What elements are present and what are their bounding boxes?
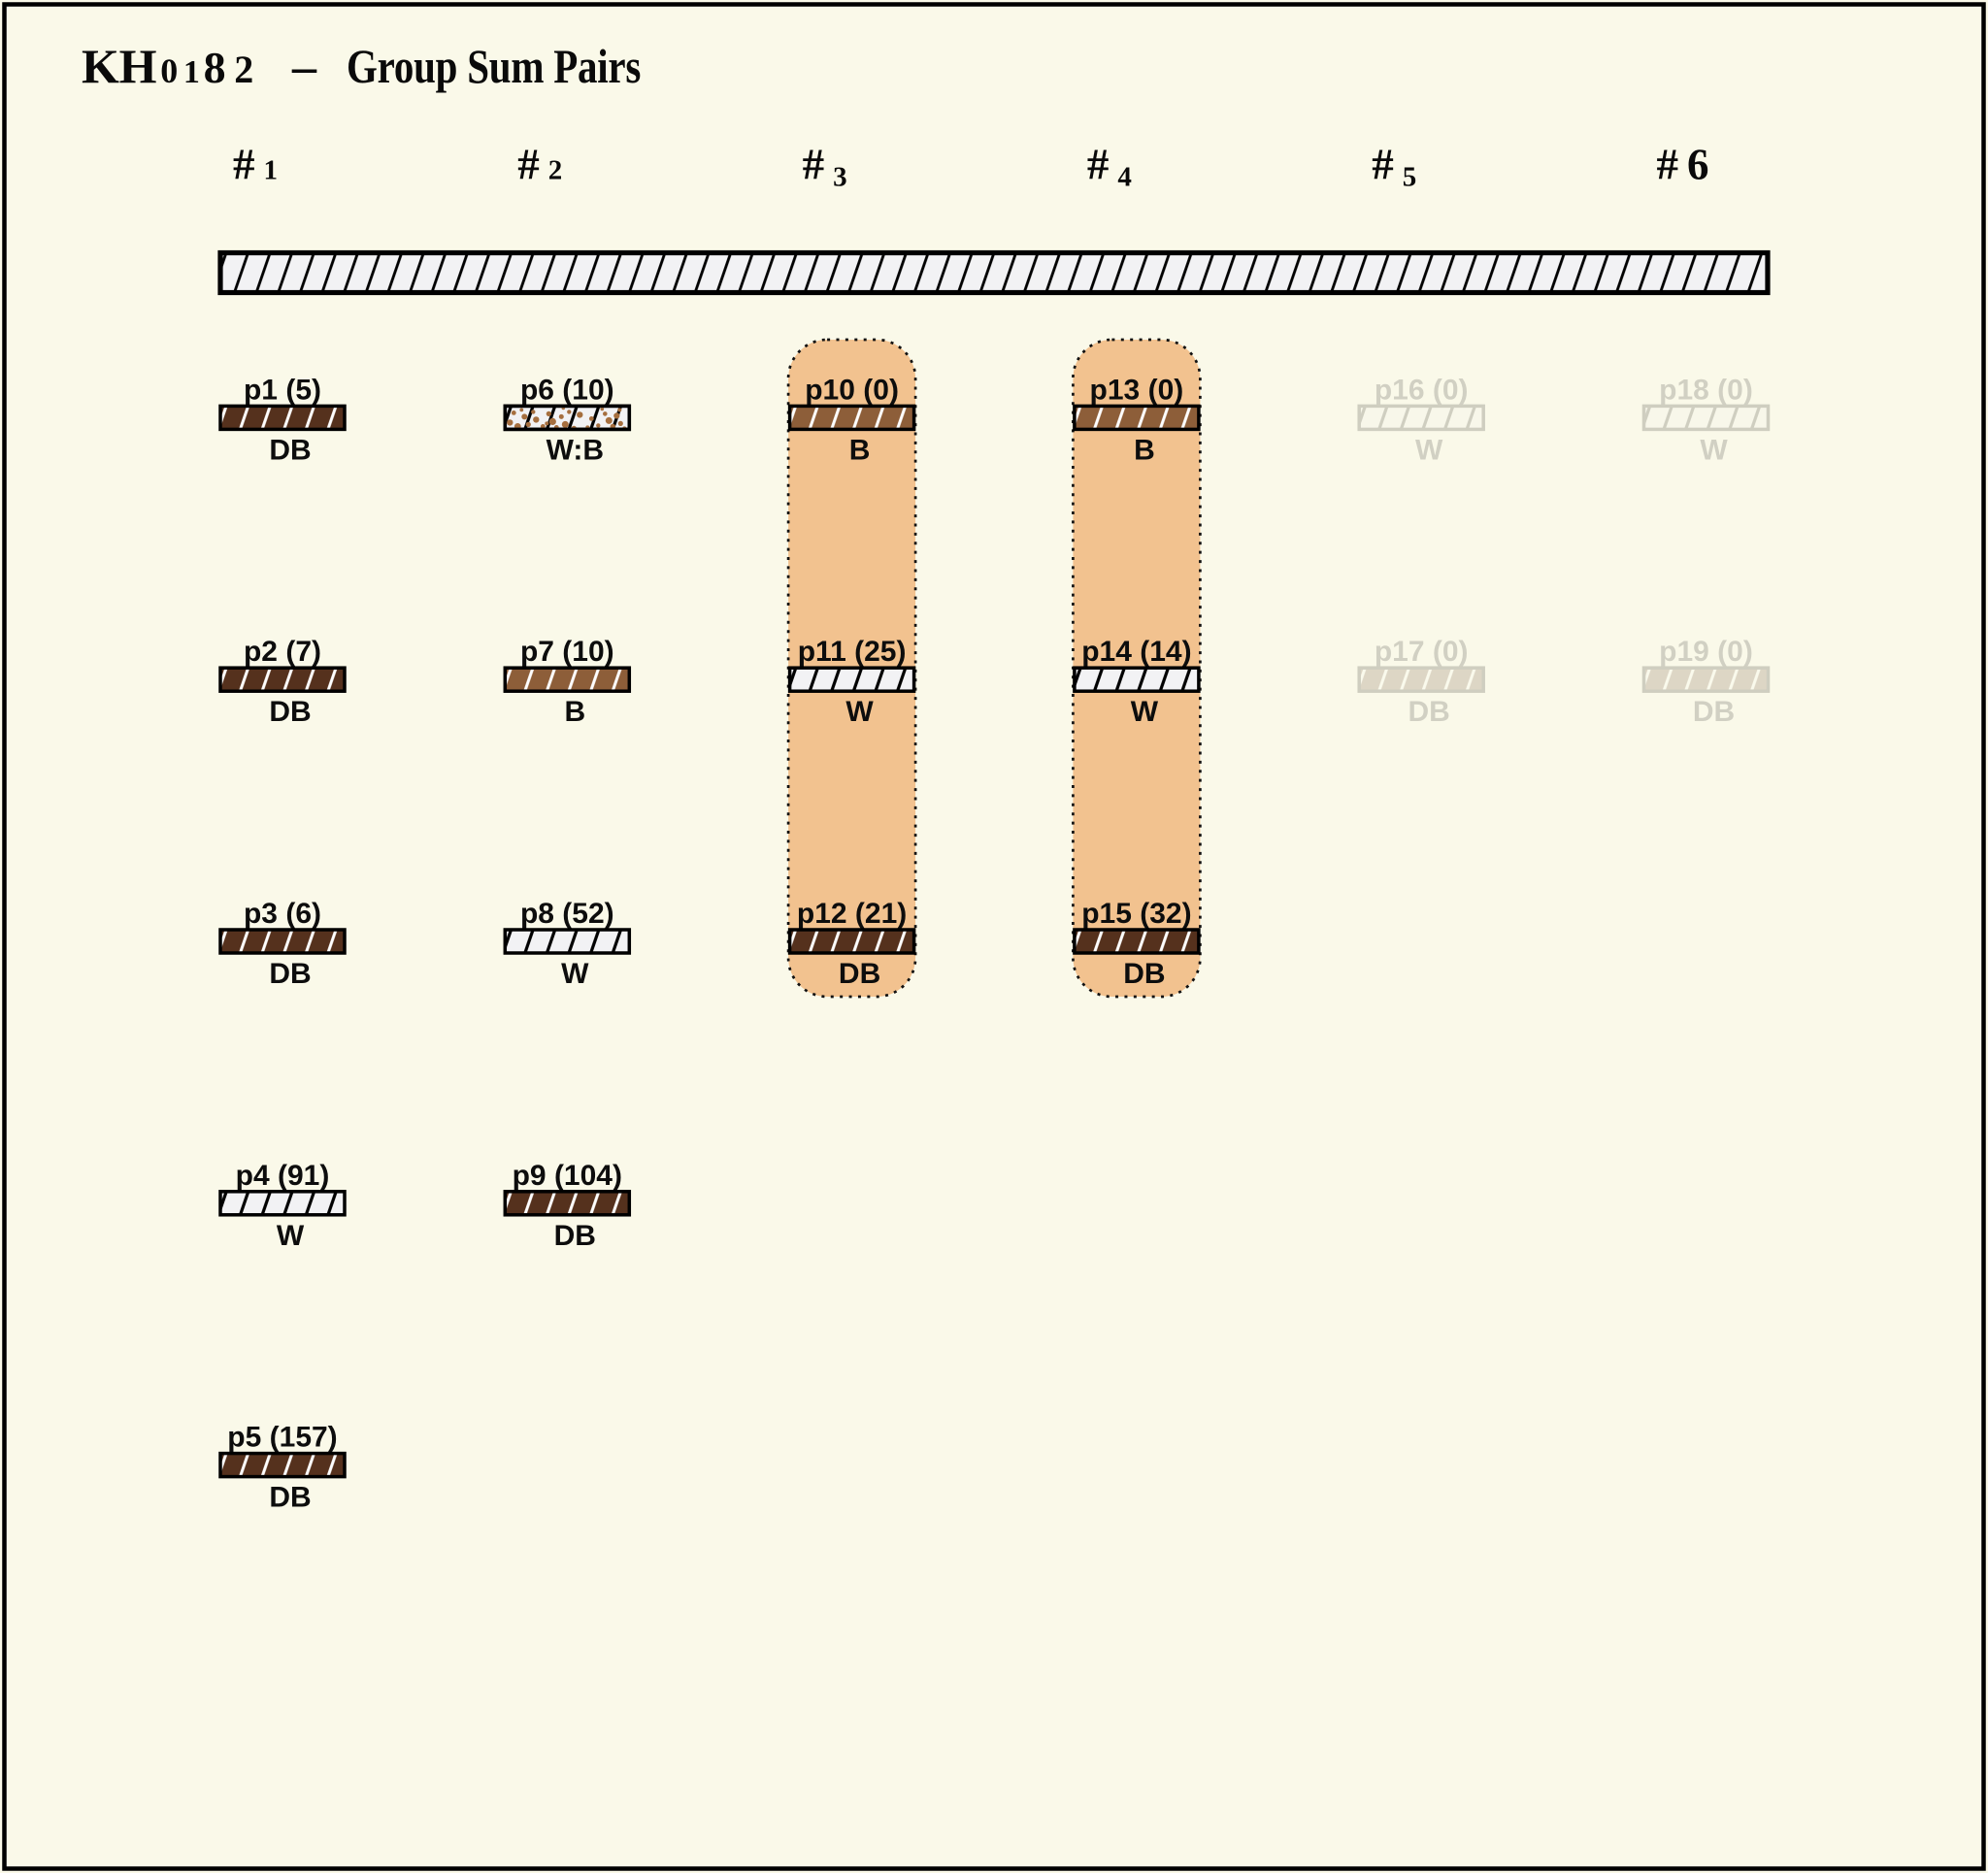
svg-text:DB: DB	[554, 1220, 596, 1252]
svg-text:p8 (52): p8 (52)	[520, 898, 614, 930]
svg-text:W: W	[277, 1220, 305, 1252]
svg-text:W: W	[845, 696, 874, 728]
svg-text:p15 (32): p15 (32)	[1081, 898, 1191, 930]
svg-text:Group Sum Pairs: Group Sum Pairs	[347, 39, 641, 93]
svg-text:p16 (0): p16 (0)	[1375, 374, 1469, 406]
svg-text:p3 (6): p3 (6)	[244, 898, 321, 930]
svg-text:p6 (10): p6 (10)	[520, 374, 614, 406]
svg-text:B: B	[849, 434, 871, 466]
svg-text:p13 (0): p13 (0)	[1090, 374, 1184, 406]
svg-text:DB: DB	[1123, 958, 1165, 990]
svg-text:W:B: W:B	[547, 434, 604, 466]
svg-text:DB: DB	[1693, 696, 1735, 728]
svg-text:DB: DB	[269, 958, 311, 990]
svg-text:p12 (21): p12 (21)	[797, 898, 907, 930]
svg-text:B: B	[1134, 434, 1155, 466]
svg-text:p10 (0): p10 (0)	[805, 374, 899, 406]
svg-text:W: W	[561, 958, 589, 990]
svg-text:p7 (10): p7 (10)	[520, 636, 614, 668]
svg-text:p4 (91): p4 (91)	[236, 1160, 330, 1192]
svg-text:p2 (7): p2 (7)	[244, 636, 321, 668]
svg-text:p9 (104): p9 (104)	[513, 1160, 622, 1192]
svg-text:p17 (0): p17 (0)	[1375, 636, 1469, 668]
svg-text:DB: DB	[269, 696, 311, 728]
svg-text:DB: DB	[1408, 696, 1450, 728]
svg-text:p11 (25): p11 (25)	[798, 636, 907, 668]
svg-text:W: W	[1415, 434, 1443, 466]
svg-text:p14 (14): p14 (14)	[1081, 636, 1191, 668]
svg-text:W: W	[1131, 696, 1159, 728]
svg-text:p18 (0): p18 (0)	[1659, 374, 1753, 406]
svg-text:p5 (157): p5 (157)	[227, 1422, 337, 1454]
svg-text:B: B	[564, 696, 585, 728]
svg-text:p19 (0): p19 (0)	[1659, 636, 1753, 668]
svg-text:DB: DB	[839, 958, 880, 990]
svg-text:p1 (5): p1 (5)	[244, 374, 321, 406]
svg-text:DB: DB	[269, 434, 311, 466]
svg-text:DB: DB	[269, 1482, 311, 1514]
svg-text:W: W	[1700, 434, 1728, 466]
